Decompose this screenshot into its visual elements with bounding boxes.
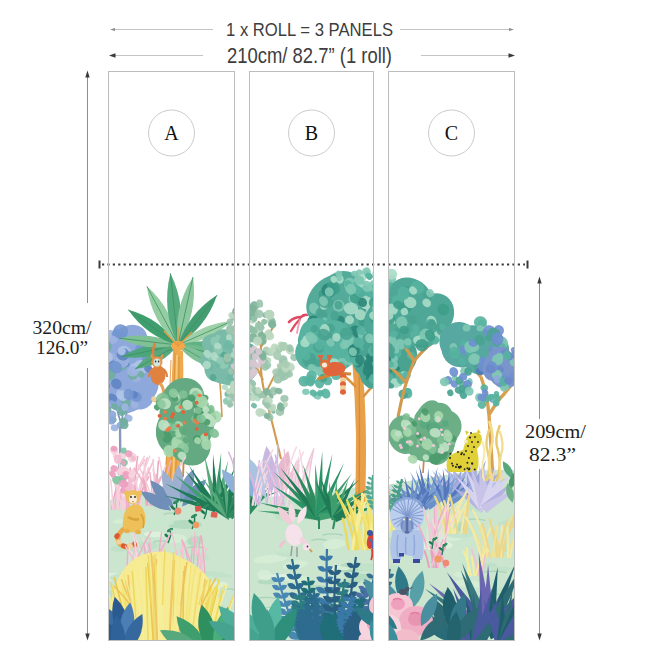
svg-text:1 x ROLL = 3 PANELS: 1 x ROLL = 3 PANELS (226, 20, 393, 40)
svg-text:82.3”: 82.3” (529, 444, 576, 465)
svg-text:A: A (164, 122, 179, 144)
svg-text:210cm/ 82.7” (1 roll): 210cm/ 82.7” (1 roll) (227, 43, 392, 68)
svg-text:C: C (445, 122, 458, 144)
svg-text:209cm/: 209cm/ (525, 421, 587, 442)
svg-text:320cm/: 320cm/ (33, 317, 93, 338)
svg-text:126.0”: 126.0” (36, 337, 88, 358)
svg-text:B: B (305, 122, 318, 144)
